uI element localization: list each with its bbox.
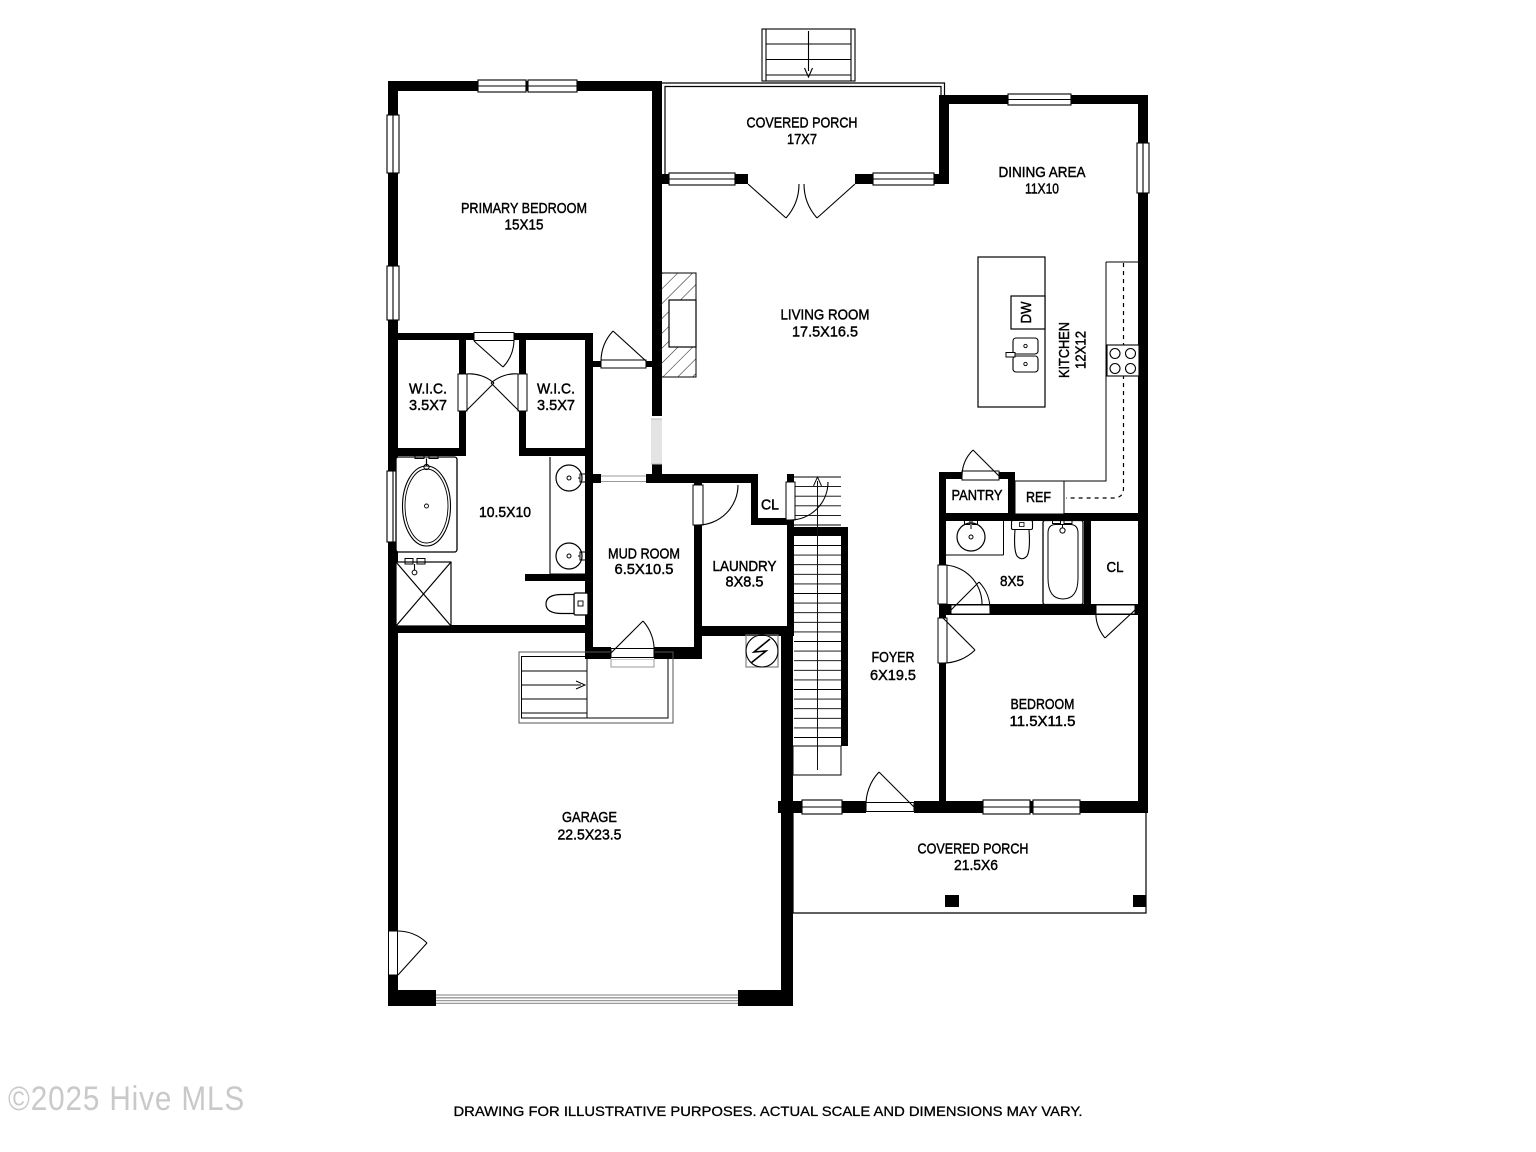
svg-text:17.5X16.5: 17.5X16.5 [792, 324, 858, 341]
svg-text:11.5X11.5: 11.5X11.5 [1010, 713, 1076, 730]
svg-text:CL: CL [1107, 559, 1124, 576]
svg-text:MUD ROOM: MUD ROOM [608, 546, 680, 563]
svg-text:3.5X7: 3.5X7 [409, 397, 447, 414]
svg-text:COVERED PORCH: COVERED PORCH [918, 841, 1029, 858]
svg-text:BEDROOM: BEDROOM [1011, 696, 1075, 713]
svg-text:COVERED PORCH: COVERED PORCH [747, 115, 858, 132]
svg-text:DINING AREA: DINING AREA [999, 164, 1086, 181]
svg-text:10.5X10: 10.5X10 [479, 504, 531, 521]
svg-text:12X12: 12X12 [1073, 331, 1090, 369]
svg-text:17X7: 17X7 [787, 131, 817, 148]
svg-text:6X19.5: 6X19.5 [870, 667, 916, 684]
svg-text:FOYER: FOYER [872, 649, 915, 666]
svg-text:8X5: 8X5 [1000, 573, 1024, 590]
svg-text:LIVING ROOM: LIVING ROOM [781, 307, 870, 324]
svg-text:LAUNDRY: LAUNDRY [713, 558, 777, 575]
svg-text:W.I.C.: W.I.C. [537, 381, 575, 398]
svg-text:22.5X23.5: 22.5X23.5 [558, 827, 622, 844]
svg-text:PANTRY: PANTRY [952, 487, 1003, 504]
svg-text:KITCHEN: KITCHEN [1056, 322, 1073, 378]
svg-text:PRIMARY BEDROOM: PRIMARY BEDROOM [461, 200, 587, 217]
svg-text:DRAWING FOR ILLUSTRATIVE PURPO: DRAWING FOR ILLUSTRATIVE PURPOSES. ACTUA… [454, 1104, 1083, 1119]
svg-text:REF: REF [1026, 489, 1051, 506]
svg-text:8X8.5: 8X8.5 [726, 574, 764, 591]
svg-text:W.I.C.: W.I.C. [409, 381, 447, 398]
svg-text:15X15: 15X15 [505, 217, 544, 234]
svg-text:3.5X7: 3.5X7 [537, 397, 575, 414]
svg-text:11X10: 11X10 [1025, 181, 1059, 198]
svg-text:6.5X10.5: 6.5X10.5 [615, 561, 674, 578]
svg-text:CL: CL [761, 497, 779, 514]
svg-text:21.5X6: 21.5X6 [954, 857, 998, 874]
svg-text:DW: DW [1018, 301, 1035, 324]
svg-text:©2025 Hive MLS: ©2025 Hive MLS [8, 1080, 245, 1118]
svg-text:GARAGE: GARAGE [562, 809, 617, 826]
